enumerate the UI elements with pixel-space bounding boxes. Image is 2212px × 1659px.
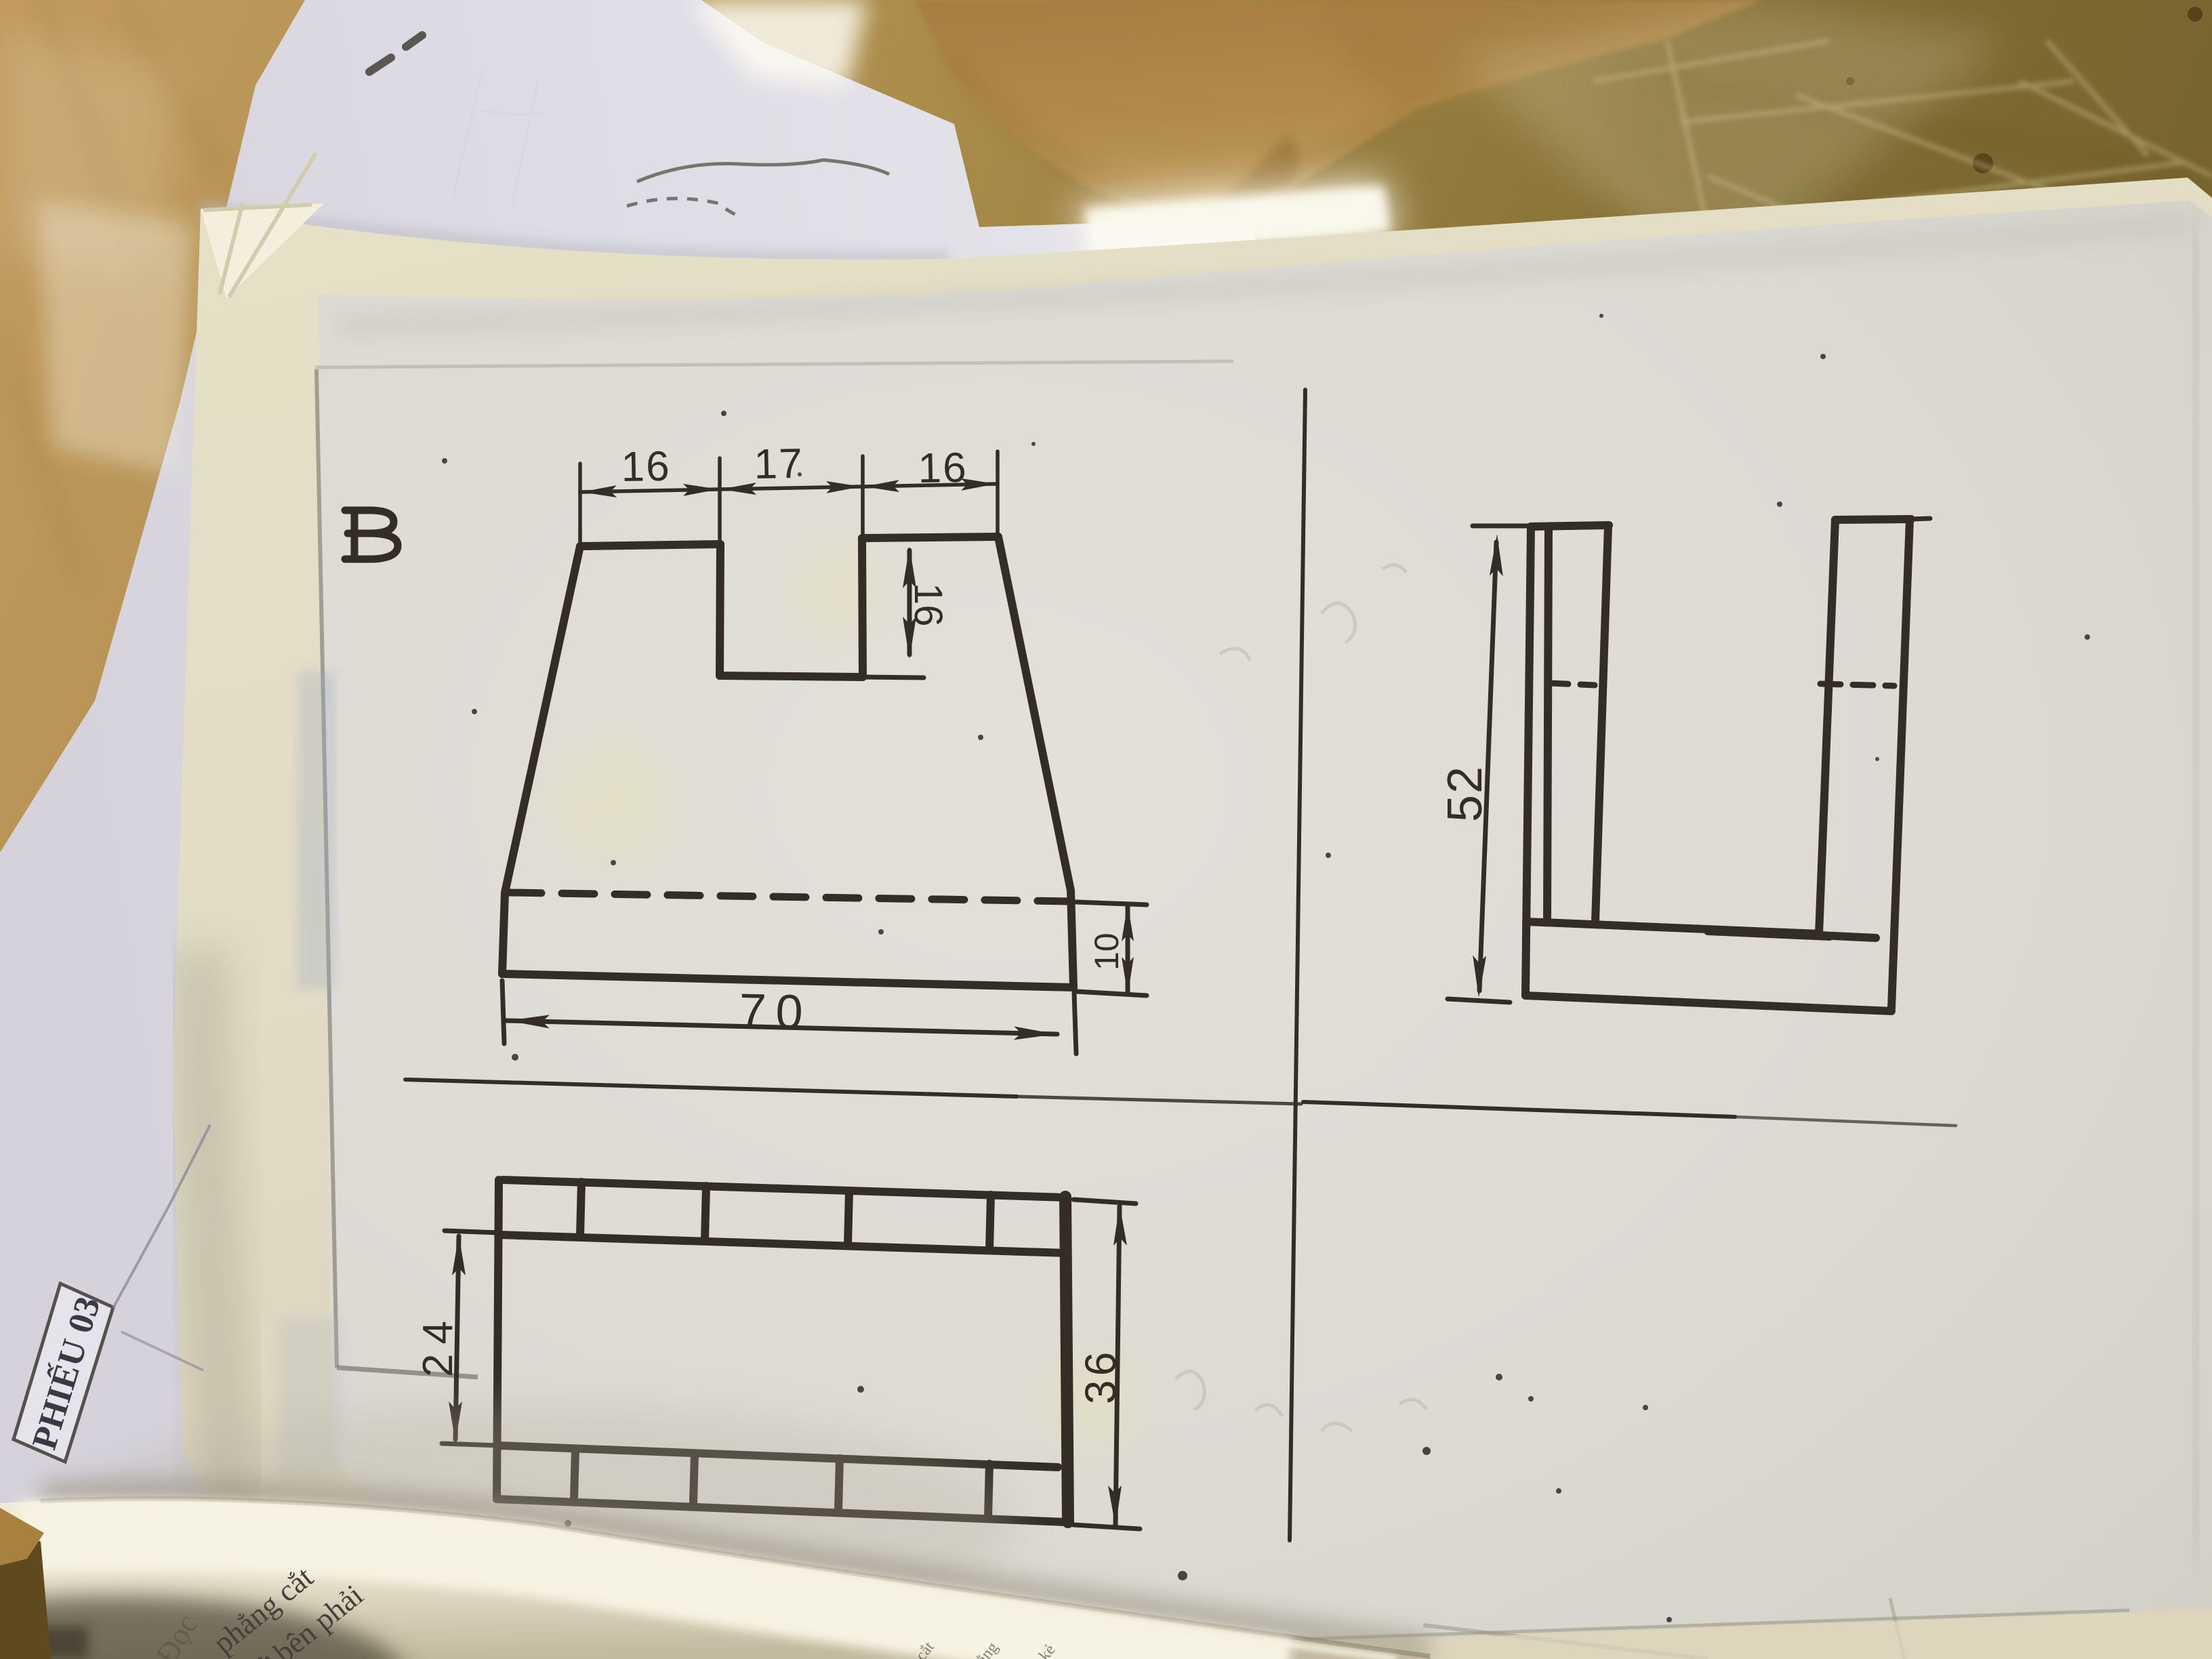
svg-text:24: 24	[415, 1311, 462, 1377]
svg-text:16: 16	[621, 443, 671, 491]
svg-text:17: 17	[754, 441, 804, 488]
svg-text:36: 36	[1076, 1348, 1125, 1404]
svg-text:16: 16	[918, 445, 968, 492]
svg-text:10: 10	[1088, 933, 1126, 970]
svg-text:16: 16	[906, 583, 950, 627]
svg-text:52: 52	[1438, 765, 1492, 822]
svg-text:70: 70	[739, 984, 813, 1040]
